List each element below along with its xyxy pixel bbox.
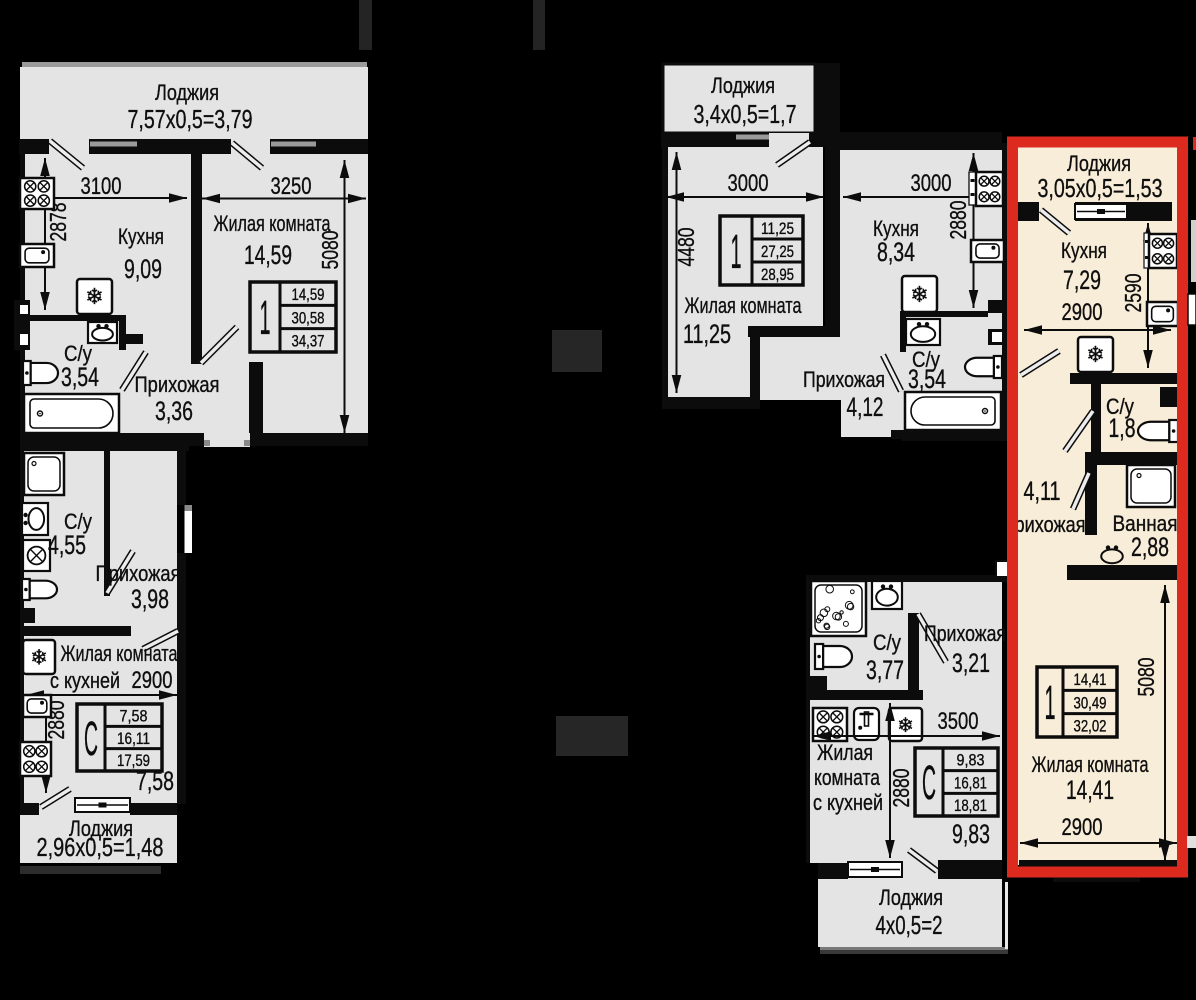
svg-text:7,58: 7,58 [120,707,148,726]
svg-text:❄: ❄ [85,284,103,309]
svg-text:С: С [922,757,936,810]
svg-text:2880: 2880 [888,769,914,808]
svg-text:2590: 2590 [1120,274,1146,313]
svg-text:7,58: 7,58 [136,766,174,796]
svg-text:16,81: 16,81 [954,773,987,792]
svg-text:3,4х0,5=1,7: 3,4х0,5=1,7 [694,99,797,129]
svg-text:2900: 2900 [1062,814,1103,841]
svg-text:С/у: С/у [873,630,901,655]
svg-text:Прихожая: Прихожая [803,367,885,392]
svg-text:1: 1 [260,292,271,345]
svg-text:Прихожая: Прихожая [96,561,181,586]
svg-text:9,09: 9,09 [124,254,162,284]
svg-text:4х0,5=2: 4х0,5=2 [876,910,943,940]
svg-text:18,81: 18,81 [954,796,987,815]
svg-text:14,59: 14,59 [292,285,325,304]
svg-text:3000: 3000 [911,170,952,197]
svg-text:❄: ❄ [30,646,48,669]
svg-text:32,02: 32,02 [1074,717,1107,736]
svg-text:9,83: 9,83 [952,819,990,849]
svg-text:3100: 3100 [81,173,122,200]
svg-text:2900: 2900 [132,667,173,694]
svg-text:4,11: 4,11 [1024,476,1061,506]
svg-text:3,54: 3,54 [908,364,946,394]
svg-text:Жилая комната: Жилая комната [685,293,803,318]
svg-text:Кухня: Кухня [118,224,164,249]
svg-text:2,96х0,5=1,48: 2,96х0,5=1,48 [37,832,164,862]
svg-text:3,98: 3,98 [131,584,169,614]
svg-text:С: С [84,713,98,766]
svg-text:14,41: 14,41 [1066,775,1114,805]
svg-text:3,05х0,5=1,53: 3,05х0,5=1,53 [1038,173,1163,203]
svg-text:Жилая комната: Жилая комната [1032,752,1150,777]
svg-text:3,21: 3,21 [952,648,990,678]
svg-text:Жилая: Жилая [817,740,873,765]
svg-text:16,11: 16,11 [117,729,150,748]
svg-text:4,55: 4,55 [48,530,86,560]
svg-text:Лоджия: Лоджия [155,80,219,105]
svg-text:❄: ❄ [1086,342,1104,367]
svg-text:5080: 5080 [317,231,343,270]
svg-text:❄: ❄ [897,715,914,737]
svg-text:рихожая: рихожая [1015,512,1086,537]
svg-text:3,36: 3,36 [155,396,193,426]
svg-text:1,8: 1,8 [1109,413,1136,443]
svg-text:Прихожая: Прихожая [924,621,1006,646]
svg-text:❄: ❄ [910,282,928,307]
svg-text:7,57х0,5=3,79: 7,57х0,5=3,79 [128,104,253,134]
svg-text:11,25: 11,25 [683,319,731,349]
svg-text:3,54: 3,54 [61,362,99,392]
svg-text:28,95: 28,95 [761,265,794,284]
svg-text:4,12: 4,12 [847,392,884,422]
svg-text:30,58: 30,58 [292,308,325,327]
svg-text:7,29: 7,29 [1063,265,1101,295]
svg-text:5080: 5080 [1133,658,1159,697]
svg-text:2900: 2900 [1062,299,1103,326]
svg-text:9,83: 9,83 [957,751,985,770]
svg-text:с кухней: с кухней [813,790,883,815]
svg-text:27,25: 27,25 [761,242,794,261]
svg-text:Лоджия: Лоджия [711,73,775,98]
svg-text:Жилая комната: Жилая комната [214,211,332,236]
svg-text:11,25: 11,25 [761,219,794,238]
svg-text:3500: 3500 [938,708,979,735]
svg-text:14,41: 14,41 [1074,670,1107,689]
svg-text:3250: 3250 [271,173,312,200]
svg-text:Прихожая: Прихожая [135,372,220,397]
svg-text:с кухней: с кухней [50,668,120,693]
svg-text:Кухня: Кухня [1061,238,1107,263]
svg-text:1: 1 [1045,677,1056,730]
svg-text:8,34: 8,34 [877,237,915,267]
svg-text:комната: комната [814,765,881,790]
svg-text:14,59: 14,59 [244,240,292,270]
svg-text:Жилая комната: Жилая комната [61,641,179,666]
svg-text:3,77: 3,77 [866,655,904,685]
svg-text:Лоджия: Лоджия [879,885,943,910]
svg-text:2,88: 2,88 [1131,532,1169,562]
svg-text:30,49: 30,49 [1074,693,1107,712]
svg-text:34,37: 34,37 [292,332,325,351]
svg-text:1: 1 [731,226,742,279]
svg-text:2880: 2880 [945,201,971,240]
svg-text:3000: 3000 [728,170,769,197]
